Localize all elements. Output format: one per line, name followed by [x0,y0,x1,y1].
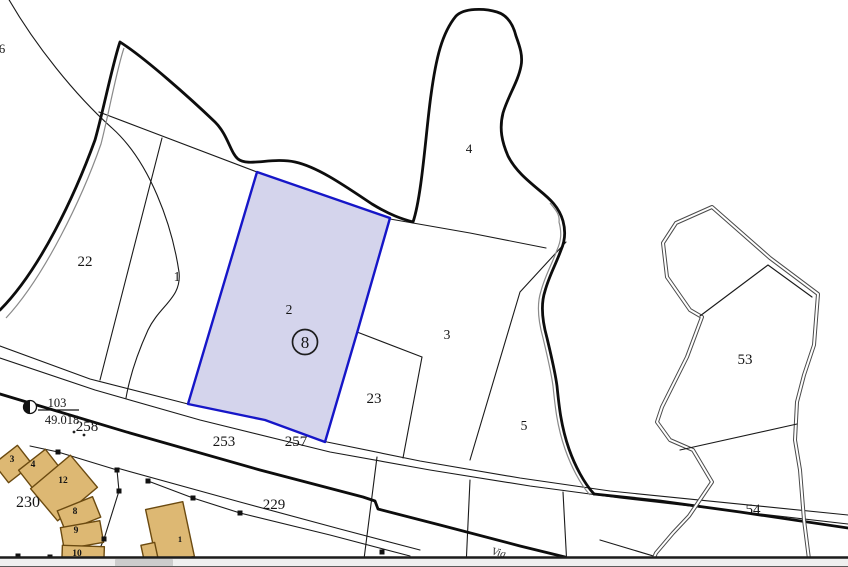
survey-point-number: 103 [48,396,67,410]
building-label-9: 9 [74,526,79,536]
parcel-label-3: 3 [444,327,451,342]
parcel-label-54: 54 [746,502,762,518]
parcel-label-2: 2 [286,302,293,317]
road-label-257: 257 [285,434,308,450]
parcel-label-4: 4 [466,141,473,156]
map-background [0,0,848,567]
scrollbar-thumb[interactable] [115,559,173,567]
building-label-3: 3 [10,455,15,465]
boundary-marker [56,450,61,455]
parcel-label-23: 23 [367,391,382,407]
parcel-label-6: 6 [0,41,6,56]
building-label-12: 12 [58,476,68,486]
cadastral-map-canvas[interactable]: 8 6 22 1 2 3 4 5 23 53 54 230 253 257 25… [0,0,848,567]
building-label-4: 4 [31,460,36,470]
parcel-label-53: 53 [738,352,753,368]
road-label-253: 253 [213,434,236,450]
road-label-229: 229 [263,497,286,513]
boundary-marker [191,496,196,501]
building-label-1: 1 [178,534,182,544]
boundary-marker [117,489,122,494]
boundary-marker [102,537,107,542]
parcel-label-5: 5 [521,418,528,433]
horizontal-scrollbar[interactable] [0,558,848,567]
boundary-marker [146,479,151,484]
boundary-marker [115,468,120,473]
boundary-marker [238,511,243,516]
selection-badge-number: 8 [301,333,310,352]
parcel-label-1: 1 [174,269,181,284]
boundary-marker [380,550,385,555]
parcel-label-22: 22 [78,254,93,270]
building-label-8: 8 [73,507,78,517]
survey-point-elevation: 49.018 [45,413,79,427]
parcel-label-230: 230 [16,494,40,511]
